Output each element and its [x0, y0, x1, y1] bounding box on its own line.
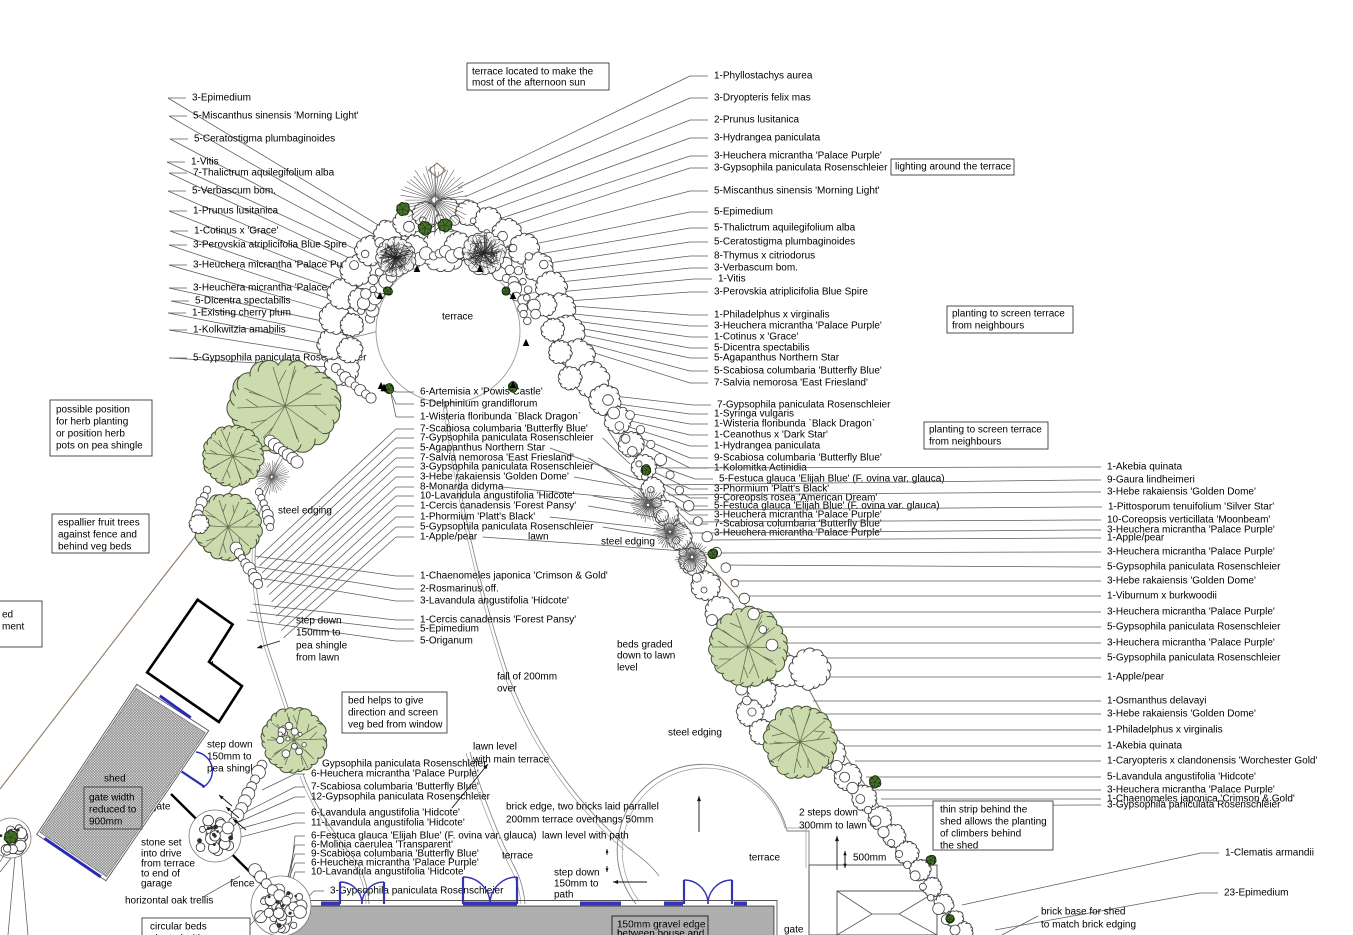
svg-text:150mm to: 150mm to [296, 628, 341, 639]
svg-text:planting to screen terrace: planting to screen terrace [929, 425, 1042, 436]
svg-text:pea shingle: pea shingle [207, 764, 259, 775]
svg-text:1-Apple/pear: 1-Apple/pear [420, 532, 478, 543]
svg-text:with main terrace: with main terrace [472, 755, 550, 766]
svg-text:5-Delphinium grandiflorum: 5-Delphinium grandiflorum [420, 399, 537, 410]
svg-text:5-Ceratostigma plumbaginoides: 5-Ceratostigma plumbaginoides [194, 134, 335, 145]
svg-text:steel edging: steel edging [278, 506, 332, 517]
svg-text:3-Hebe rakaiensis 'Golden Dome: 3-Hebe rakaiensis 'Golden Dome' [1107, 576, 1256, 587]
svg-text:3-Heuchera micrantha 'Palace P: 3-Heuchera micrantha 'Palace Purple' [714, 321, 882, 332]
svg-text:over: over [497, 684, 517, 695]
svg-text:possible position: possible position [56, 405, 130, 416]
svg-text:1-Clematis armandii: 1-Clematis armandii [1225, 848, 1314, 859]
svg-text:gate: gate [784, 925, 804, 935]
svg-text:planting to screen terrace: planting to screen terrace [952, 309, 1065, 320]
svg-text:from neighbours: from neighbours [929, 437, 1001, 448]
svg-text:shed: shed [104, 774, 126, 785]
svg-text:ment: ment [2, 622, 24, 633]
svg-text:5-Gypsophila paniculata Rosens: 5-Gypsophila paniculata Rosenschleier [1107, 622, 1281, 633]
svg-text:1-Cotinus x 'Grace': 1-Cotinus x 'Grace' [714, 332, 798, 343]
svg-text:3-Heuchera micrantha 'Palace P: 3-Heuchera micrantha 'Palace Purple' [1107, 607, 1275, 618]
svg-text:fall of 200mm: fall of 200mm [497, 672, 557, 683]
svg-text:terrace: terrace [502, 851, 534, 862]
svg-text:garage: garage [141, 879, 173, 890]
svg-text:for herb planting: for herb planting [56, 417, 128, 428]
svg-text:level: level [617, 663, 638, 674]
svg-text:5-Agapanthus Northern Star: 5-Agapanthus Northern Star [714, 353, 840, 364]
svg-text:circular beds: circular beds [150, 922, 207, 933]
svg-text:direction and screen: direction and screen [348, 708, 438, 719]
svg-text:200mm terrace overhangs 50mm: 200mm terrace overhangs 50mm [506, 815, 653, 826]
svg-text:5-Gypsophila paniculata Rosens: 5-Gypsophila paniculata Rosenschleier [1107, 653, 1281, 664]
svg-text:1-Philadelphus x virginalis: 1-Philadelphus x virginalis [1107, 725, 1223, 736]
svg-text:7-Salvia nemorosa 'East Friesl: 7-Salvia nemorosa 'East Friesland' [714, 378, 868, 389]
svg-text:1-Chaenomeles japonica 'Crimso: 1-Chaenomeles japonica 'Crimson & Gold' [420, 571, 608, 582]
svg-text:step down: step down [554, 868, 600, 879]
svg-text:brick base for shed: brick base for shed [1041, 907, 1126, 918]
svg-text:1-Cercis canadensis 'Forest Pa: 1-Cercis canadensis 'Forest Pansy' [420, 501, 576, 512]
svg-text:3-Heuchera micrantha 'Palace P: 3-Heuchera micrantha 'Palace Purple' [714, 151, 882, 162]
svg-text:from lawn: from lawn [296, 653, 339, 664]
svg-text:path: path [554, 890, 573, 901]
svg-text:1-Hydrangea paniculata: 1-Hydrangea paniculata [714, 441, 821, 452]
svg-text:2-Rosmarinus off.: 2-Rosmarinus off. [420, 584, 499, 595]
svg-text:of climbers behind: of climbers behind [940, 829, 1021, 840]
svg-text:steel edging: steel edging [668, 728, 722, 739]
svg-text:reduced to: reduced to [89, 805, 137, 816]
svg-text:3-Heuchera micrantha 'Palace P: 3-Heuchera micrantha 'Palace Purple' [193, 260, 361, 271]
svg-text:3-Gypsophila paniculata Rosens: 3-Gypsophila paniculata Rosenschleier [330, 886, 504, 897]
svg-text:1-Viburnum x burkwoodii: 1-Viburnum x burkwoodii [1107, 591, 1217, 602]
svg-text:1-Vitis: 1-Vitis [191, 157, 219, 168]
svg-text:5-Gypsophila paniculata Rosens: 5-Gypsophila paniculata Rosenschleier [1107, 562, 1281, 573]
svg-text:5-Origanum: 5-Origanum [420, 636, 473, 647]
svg-text:3-Hydrangea paniculata: 3-Hydrangea paniculata [714, 133, 821, 144]
svg-text:ed: ed [2, 610, 13, 621]
svg-text:3-Heuchera micrantha 'Palace P: 3-Heuchera micrantha 'Palace Purple' [1107, 547, 1275, 558]
svg-text:6-Heuchera micrantha 'Palace P: 6-Heuchera micrantha 'Palace Purple' [311, 769, 479, 780]
svg-text:3-Verbascum bom.: 3-Verbascum bom. [714, 263, 798, 274]
svg-text:1-Apple/pear: 1-Apple/pear [1107, 533, 1165, 544]
svg-text:1-Pittosporum tenuifolium 'Sil: 1-Pittosporum tenuifolium 'Silver Star' [1108, 502, 1274, 513]
svg-text:horizontal oak trellis: horizontal oak trellis [125, 896, 213, 907]
svg-text:10-Lavandula angustifolia 'Hid: 10-Lavandula angustifolia 'Hidcote' [311, 867, 466, 878]
svg-text:or position herb: or position herb [56, 429, 125, 440]
svg-text:1-Ceanothus x 'Dark Star': 1-Ceanothus x 'Dark Star' [714, 430, 828, 441]
svg-text:3-Gypsophila paniculata Rosens: 3-Gypsophila paniculata Rosenschleier [714, 163, 888, 174]
svg-text:5-Miscanthus sinensis 'Morning: 5-Miscanthus sinensis 'Morning Light' [714, 186, 880, 197]
svg-text:against fence and: against fence and [58, 530, 137, 541]
svg-text:shed allows the planting: shed allows the planting [940, 817, 1047, 828]
svg-text:terrace: terrace [442, 312, 474, 323]
svg-text:lawn level with path: lawn level with path [542, 831, 629, 842]
svg-text:step down: step down [207, 740, 253, 751]
svg-text:the shed: the shed [940, 841, 978, 852]
svg-text:23-Epimedium: 23-Epimedium [1224, 888, 1288, 899]
svg-text:3-Heuchera micrantha 'Palace P: 3-Heuchera micrantha 'Palace Purple' [1107, 638, 1275, 649]
svg-text:1-Phyllostachys aurea: 1-Phyllostachys aurea [714, 71, 813, 82]
svg-text:terrace located to make the: terrace located to make the [472, 67, 594, 78]
svg-text:1-Caryopteris x clandonensis ': 1-Caryopteris x clandonensis 'Worchester… [1107, 756, 1317, 767]
svg-text:step down: step down [296, 616, 342, 627]
svg-text:to match brick edging: to match brick edging [1041, 920, 1136, 931]
svg-text:1-Existing cherry plum: 1-Existing cherry plum [192, 308, 291, 319]
svg-text:1-Vitis: 1-Vitis [718, 274, 746, 285]
svg-text:150mm to: 150mm to [207, 752, 252, 763]
svg-text:most of the afternoon sun: most of the afternoon sun [472, 78, 585, 89]
svg-text:3-Perovskia atriplicifolia Blu: 3-Perovskia atriplicifolia Blue Spire [193, 240, 347, 251]
svg-text:150mm to: 150mm to [554, 879, 599, 890]
svg-text:3-Epimedium: 3-Epimedium [192, 93, 251, 104]
svg-text:steel edging: steel edging [601, 537, 655, 548]
svg-text:900mm: 900mm [89, 817, 122, 828]
svg-text:1-Cotinus x 'Grace': 1-Cotinus x 'Grace' [194, 226, 278, 237]
svg-text:5-Miscanthus sinensis 'Morning: 5-Miscanthus sinensis 'Morning Light' [193, 111, 359, 122]
svg-text:11-Lavandula angustifolia 'Hid: 11-Lavandula angustifolia 'Hidcote' [311, 818, 465, 829]
svg-text:1-Akebia quinata: 1-Akebia quinata [1107, 462, 1182, 473]
svg-text:3-Hebe rakaiensis 'Golden Dome: 3-Hebe rakaiensis 'Golden Dome' [1107, 709, 1256, 720]
svg-text:5-Ceratostigma plumbaginoides: 5-Ceratostigma plumbaginoides [714, 237, 855, 248]
svg-text:espallier fruit trees: espallier fruit trees [58, 518, 140, 529]
svg-text:down to lawn: down to lawn [617, 651, 675, 662]
svg-text:brick edge, two bricks laid pa: brick edge, two bricks laid parrallel [506, 802, 659, 813]
svg-text:3-Dryopteris felix mas: 3-Dryopteris felix mas [714, 93, 811, 104]
svg-text:3-Perovskia atriplicifolia Blu: 3-Perovskia atriplicifolia Blue Spire [714, 287, 868, 298]
svg-text:6-Artemisia x 'Powis Castle': 6-Artemisia x 'Powis Castle' [420, 387, 543, 398]
svg-text:lawn level: lawn level [473, 742, 517, 753]
svg-text:from neighbours: from neighbours [952, 321, 1024, 332]
svg-text:5-Lavandula angustifolia 'Hidc: 5-Lavandula angustifolia 'Hidcote' [1107, 772, 1256, 783]
svg-text:2 steps down: 2 steps down [799, 808, 858, 819]
svg-text:5-Epimedium: 5-Epimedium [420, 624, 479, 635]
svg-text:7-Thalictrum aquilegifolium al: 7-Thalictrum aquilegifolium alba [193, 168, 335, 179]
svg-text:veg bed from window: veg bed from window [348, 720, 443, 731]
svg-text:behind veg beds: behind veg beds [58, 542, 131, 553]
svg-text:between house and: between house and [617, 929, 704, 935]
svg-text:500mm: 500mm [853, 853, 886, 864]
svg-text:1-Wisteria floribunda `Black D: 1-Wisteria floribunda `Black Dragon` [714, 418, 875, 430]
svg-text:2-Prunus lusitanica: 2-Prunus lusitanica [714, 115, 799, 126]
svg-text:1-Prunus lusitanica: 1-Prunus lusitanica [193, 206, 278, 217]
svg-text:3-Gypsophila paniculata Rosens: 3-Gypsophila paniculata Rosenschleier [1107, 800, 1281, 811]
svg-text:5-Verbascum bom.: 5-Verbascum bom. [192, 186, 276, 197]
svg-text:thin strip behind the: thin strip behind the [940, 805, 1028, 816]
svg-text:1-Kolkwitzia amabilis: 1-Kolkwitzia amabilis [193, 325, 286, 336]
svg-text:fence: fence [230, 879, 255, 890]
svg-text:1-Philadelphus x virginalis: 1-Philadelphus x virginalis [714, 310, 830, 321]
svg-text:1-Akebia quinata: 1-Akebia quinata [1107, 741, 1182, 752]
svg-text:5-Thalictrum aquilegifolium al: 5-Thalictrum aquilegifolium alba [714, 223, 856, 234]
svg-text:terrace: terrace [749, 853, 781, 864]
svg-text:stone set: stone set [141, 838, 182, 849]
svg-text:beds graded: beds graded [617, 640, 673, 651]
svg-text:5-Scabiosa columbaria 'Butterf: 5-Scabiosa columbaria 'Butterfly Blue' [714, 366, 882, 377]
svg-text:1-Osmanthus delavayi: 1-Osmanthus delavayi [1107, 696, 1207, 707]
svg-text:pots on pea shingle: pots on pea shingle [56, 441, 143, 452]
svg-text:3-Hebe rakaiensis 'Golden Dome: 3-Hebe rakaiensis 'Golden Dome' [1107, 487, 1256, 498]
svg-text:gate width: gate width [89, 793, 135, 804]
svg-text:1-Apple/pear: 1-Apple/pear [1107, 672, 1165, 683]
svg-text:pea shingle: pea shingle [296, 641, 348, 652]
svg-text:lawn: lawn [528, 532, 549, 543]
svg-text:300mm to lawn: 300mm to lawn [799, 821, 867, 832]
svg-text:1-Wisteria floribunda `Black D: 1-Wisteria floribunda `Black Dragon` [420, 411, 581, 423]
svg-text:5-Epimedium: 5-Epimedium [714, 207, 773, 218]
svg-text:5-Dicentra spectabilis: 5-Dicentra spectabilis [195, 296, 291, 307]
svg-text:9-Gaura lindheimeri: 9-Gaura lindheimeri [1107, 475, 1195, 486]
svg-text:3-Lavandula angustifolia 'Hidc: 3-Lavandula angustifolia 'Hidcote' [420, 596, 569, 607]
svg-text:8-Thymus x citriodorus: 8-Thymus x citriodorus [714, 251, 815, 262]
svg-text:bed helps to give: bed helps to give [348, 696, 424, 707]
svg-text:lighting around the terrace: lighting around the terrace [895, 162, 1012, 173]
